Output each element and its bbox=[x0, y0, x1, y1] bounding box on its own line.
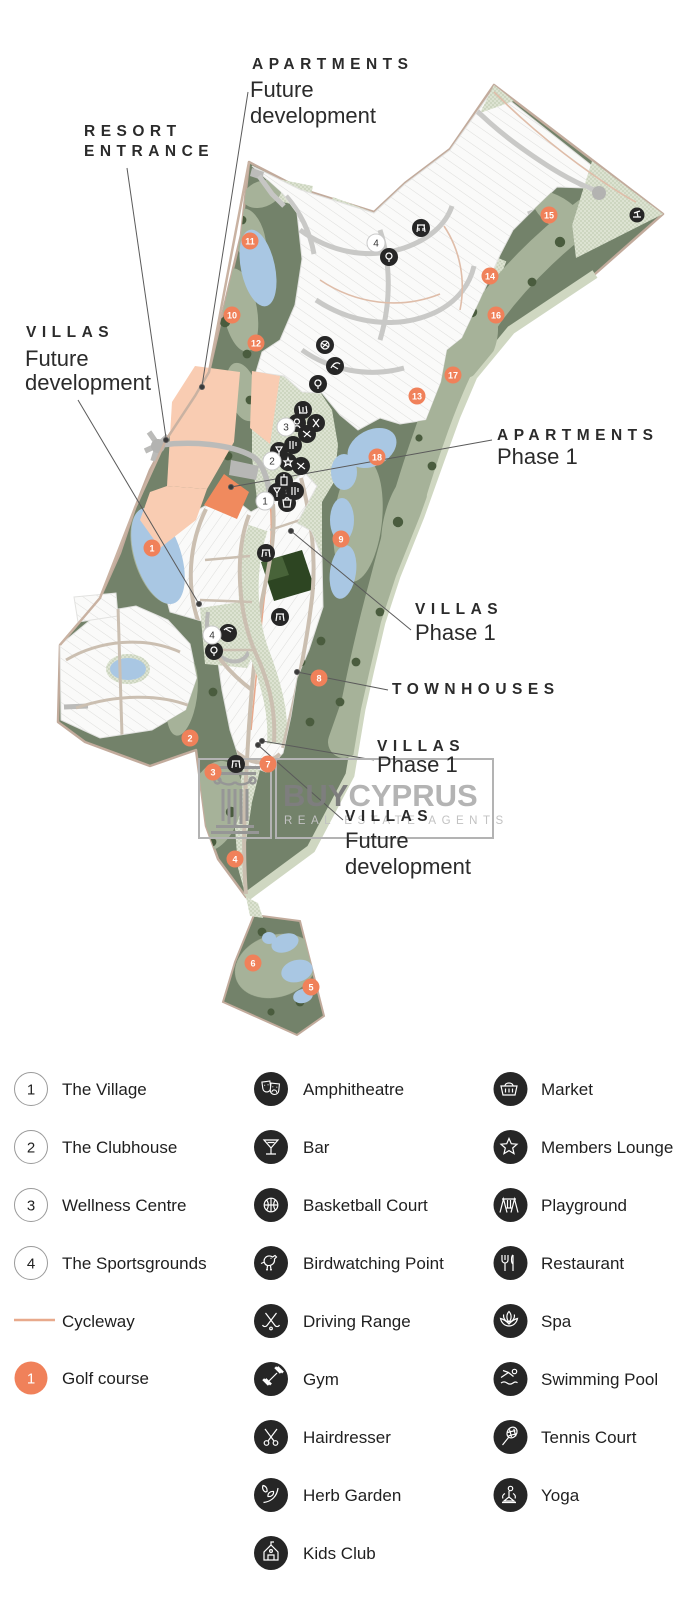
svg-text:Driving Range: Driving Range bbox=[303, 1312, 411, 1331]
svg-text:3: 3 bbox=[210, 768, 215, 778]
svg-text:Kids Club: Kids Club bbox=[303, 1544, 376, 1563]
svg-text:APARTMENTS: APARTMENTS bbox=[497, 427, 659, 444]
svg-text:Members Lounge: Members Lounge bbox=[541, 1138, 673, 1157]
svg-text:Gym: Gym bbox=[303, 1370, 339, 1389]
svg-text:11: 11 bbox=[245, 237, 255, 247]
svg-text:15: 15 bbox=[544, 211, 554, 221]
svg-text:5: 5 bbox=[308, 983, 313, 993]
svg-text:8: 8 bbox=[316, 674, 321, 684]
svg-text:Yoga: Yoga bbox=[541, 1486, 580, 1505]
svg-text:Basketball Court: Basketball Court bbox=[303, 1196, 428, 1215]
svg-text:TOWNHOUSES: TOWNHOUSES bbox=[392, 681, 560, 698]
svg-text:Playground: Playground bbox=[541, 1196, 627, 1215]
svg-text:13: 13 bbox=[412, 392, 422, 402]
svg-text:Cycleway: Cycleway bbox=[62, 1312, 135, 1331]
svg-text:18: 18 bbox=[372, 453, 382, 463]
svg-text:Restaurant: Restaurant bbox=[541, 1254, 624, 1273]
svg-text:3: 3 bbox=[283, 423, 289, 434]
svg-text:Herb Garden: Herb Garden bbox=[303, 1486, 401, 1505]
svg-text:APARTMENTS: APARTMENTS bbox=[252, 56, 414, 73]
svg-text:12: 12 bbox=[251, 339, 261, 349]
svg-text:The Clubhouse: The Clubhouse bbox=[62, 1138, 177, 1157]
svg-text:10: 10 bbox=[227, 311, 237, 321]
svg-text:Market: Market bbox=[541, 1080, 593, 1099]
svg-text:development: development bbox=[250, 103, 376, 128]
svg-text:Phase 1: Phase 1 bbox=[377, 752, 458, 777]
svg-text:Future: Future bbox=[345, 828, 409, 853]
svg-text:6: 6 bbox=[250, 959, 255, 969]
svg-text:Phase 1: Phase 1 bbox=[497, 444, 578, 469]
svg-text:4: 4 bbox=[209, 631, 215, 642]
svg-text:RESORT: RESORT bbox=[84, 123, 182, 140]
svg-text:Spa: Spa bbox=[541, 1312, 572, 1331]
svg-text:Phase 1: Phase 1 bbox=[415, 620, 496, 645]
svg-text:Hairdresser: Hairdresser bbox=[303, 1428, 391, 1447]
svg-text:4: 4 bbox=[373, 239, 379, 250]
svg-text:Golf course: Golf course bbox=[62, 1369, 149, 1388]
svg-text:ENTRANCE: ENTRANCE bbox=[84, 143, 214, 160]
svg-text:VILLAS: VILLAS bbox=[26, 324, 114, 341]
svg-text:Wellness Centre: Wellness Centre bbox=[62, 1196, 186, 1215]
svg-text:2: 2 bbox=[269, 457, 275, 468]
svg-text:7: 7 bbox=[265, 760, 270, 770]
svg-text:Amphitheatre: Amphitheatre bbox=[303, 1080, 404, 1099]
svg-text:1: 1 bbox=[27, 1371, 35, 1388]
svg-text:2: 2 bbox=[27, 1140, 35, 1157]
svg-text:4: 4 bbox=[232, 855, 237, 865]
svg-text:17: 17 bbox=[448, 371, 458, 381]
svg-text:Future: Future bbox=[250, 77, 314, 102]
svg-text:The Village: The Village bbox=[62, 1080, 147, 1099]
svg-text:3: 3 bbox=[27, 1198, 35, 1215]
svg-text:Birdwatching Point: Birdwatching Point bbox=[303, 1254, 444, 1273]
svg-text:14: 14 bbox=[485, 272, 495, 282]
svg-text:1: 1 bbox=[262, 497, 268, 508]
svg-text:Bar: Bar bbox=[303, 1138, 330, 1157]
svg-text:9: 9 bbox=[338, 535, 343, 545]
svg-text:development: development bbox=[25, 370, 151, 395]
svg-text:2: 2 bbox=[187, 734, 192, 744]
svg-text:Swimming Pool: Swimming Pool bbox=[541, 1370, 658, 1389]
svg-text:1: 1 bbox=[27, 1082, 35, 1099]
svg-text:VILLAS: VILLAS bbox=[345, 808, 433, 825]
svg-text:VILLAS: VILLAS bbox=[415, 601, 503, 618]
svg-text:4: 4 bbox=[27, 1256, 35, 1273]
svg-text:1: 1 bbox=[149, 544, 154, 554]
svg-text:Future: Future bbox=[25, 346, 89, 371]
svg-text:The Sportsgrounds: The Sportsgrounds bbox=[62, 1254, 207, 1273]
svg-text:development: development bbox=[345, 854, 471, 879]
svg-text:Tennis Court: Tennis Court bbox=[541, 1428, 637, 1447]
svg-text:16: 16 bbox=[491, 311, 501, 321]
